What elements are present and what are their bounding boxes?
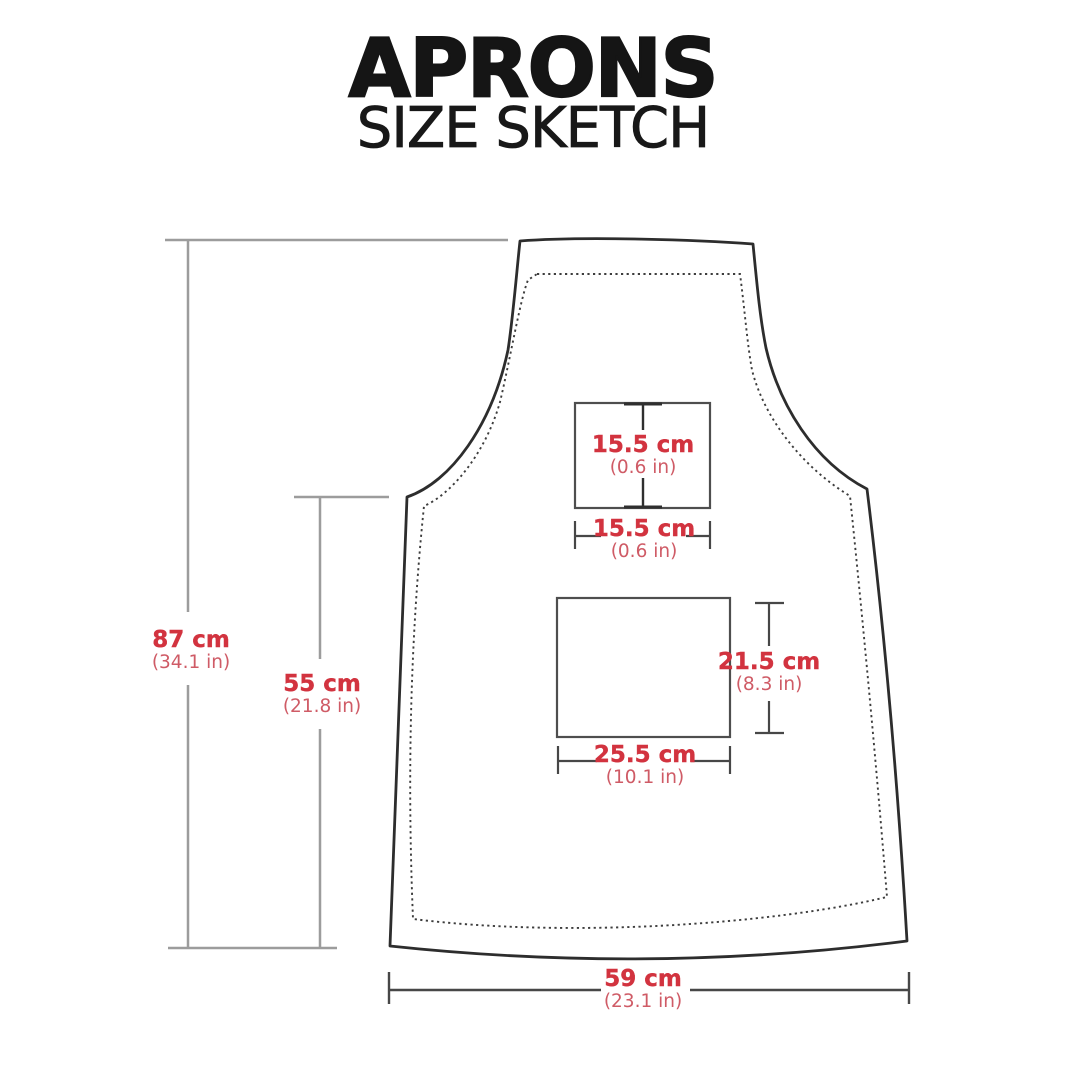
chest-pocket-width-metric: 15.5 cm	[593, 516, 695, 542]
chest-pocket-width-imperial: (0.6 in)	[593, 542, 695, 562]
chest-pocket-width-label: 15.5 cm (0.6 in)	[593, 516, 695, 562]
bottom-width-metric: 59 cm	[604, 966, 682, 992]
total-height-imperial: (34.1 in)	[152, 653, 230, 673]
bottom-width-label: 59 cm (23.1 in)	[604, 966, 682, 1012]
total-height-metric: 87 cm	[152, 627, 230, 653]
apron-size-sketch: APRONS SIZE SKETCH 87 cm (34.1 in) 55 cm…	[0, 0, 1080, 1080]
total-height-label: 87 cm (34.1 in)	[152, 627, 230, 673]
front-pocket-height-metric: 21.5 cm	[718, 649, 820, 675]
torso-height-label: 55 cm (21.8 in)	[283, 671, 361, 717]
apron-diagram	[0, 0, 1080, 1080]
torso-height-imperial: (21.8 in)	[283, 697, 361, 717]
front-pocket-height-label: 21.5 cm (8.3 in)	[718, 649, 820, 695]
chest-pocket-height-label: 15.5 cm (0.6 in)	[592, 432, 694, 478]
bottom-width-imperial: (23.1 in)	[604, 992, 682, 1012]
front-pocket-width-metric: 25.5 cm	[594, 742, 696, 768]
front-pocket-height-imperial: (8.3 in)	[718, 675, 820, 695]
chest-pocket-height-metric: 15.5 cm	[592, 432, 694, 458]
front-pocket	[557, 598, 730, 737]
front-pocket-width-imperial: (10.1 in)	[594, 768, 696, 788]
torso-height-metric: 55 cm	[283, 671, 361, 697]
front-pocket-width-label: 25.5 cm (10.1 in)	[594, 742, 696, 788]
chest-pocket-height-imperial: (0.6 in)	[592, 458, 694, 478]
page-subtitle: SIZE SKETCH	[357, 101, 709, 157]
